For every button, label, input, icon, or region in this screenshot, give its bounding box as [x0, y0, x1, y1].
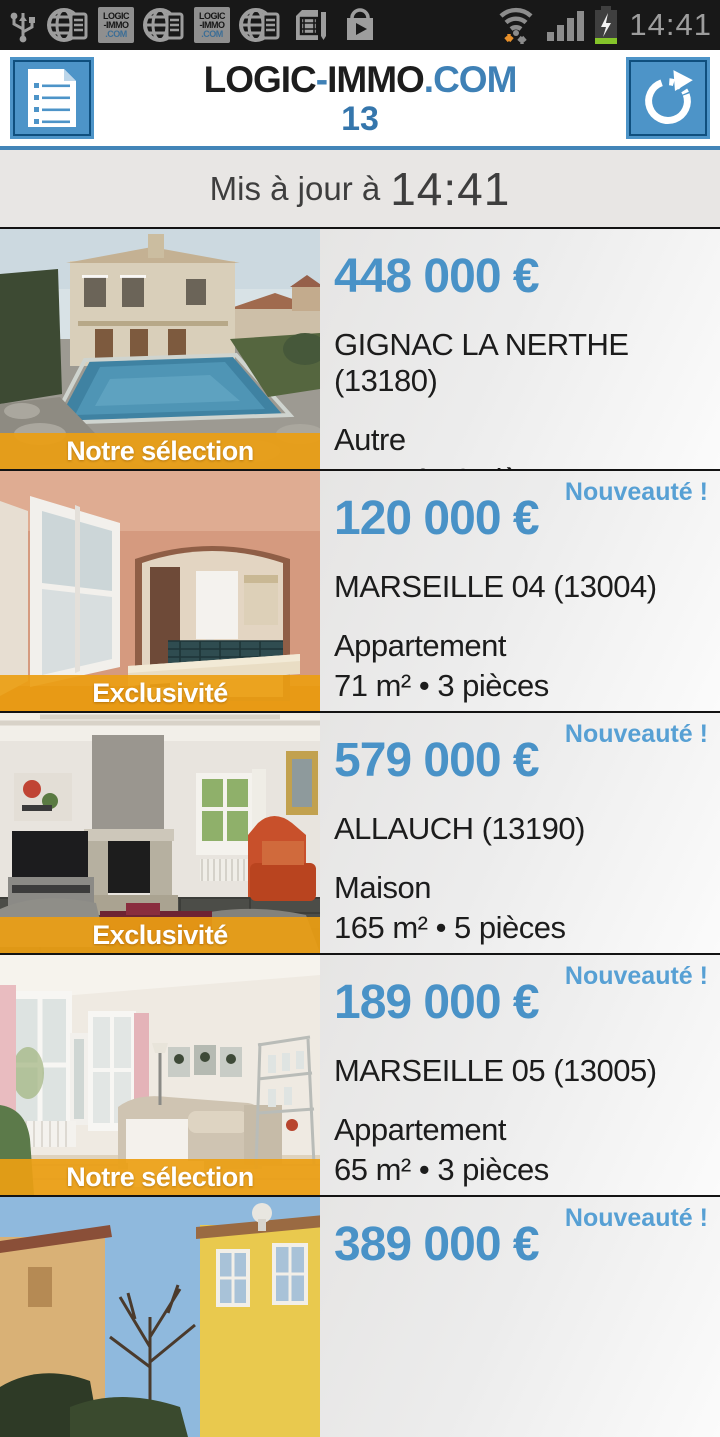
list-document-icon — [26, 67, 78, 129]
badge-exclusivite: Exclusivité — [0, 675, 320, 711]
listing-location: MARSEILLE 05 (13005) — [334, 1053, 708, 1089]
update-time: 14:41 — [390, 162, 510, 216]
app-title-main: LOGIC-IMMO.COM — [94, 61, 626, 100]
listing-details: 65 m² • 3 pièces — [334, 1152, 708, 1188]
play-store-icon — [339, 6, 379, 44]
listings-menu-button[interactable] — [10, 57, 94, 139]
property-photo-house-with-pool: Notre sélection — [0, 229, 320, 469]
listing-row[interactable]: Notre sélection Nouveauté ! 189 000 € MA… — [0, 953, 720, 1195]
listing-row[interactable]: Nouveauté ! 389 000 € — [0, 1195, 720, 1437]
logic-immo-app-icon: LOGIC -IMMO .COM — [98, 7, 134, 43]
app-screen: LOGIC -IMMO .COM LOGIC -IMMO .COM — [0, 0, 720, 1280]
badge-exclusivite: Exclusivité — [0, 917, 320, 953]
usb-icon — [8, 7, 38, 43]
listing-location: GIGNAC LA NERTHE (13180) — [334, 327, 708, 399]
listing-info: Nouveauté ! 120 000 € MARSEILLE 04 (1300… — [320, 471, 720, 711]
listing-details: 71 m² • 3 pièces — [334, 668, 708, 704]
badge-notre-selection: Notre sélection — [0, 1159, 320, 1195]
browser-notification-icon — [47, 6, 89, 44]
browser-notification-icon — [143, 6, 185, 44]
app-title: LOGIC-IMMO.COM 13 — [94, 59, 626, 138]
listing-info: Nouveauté ! 189 000 € MARSEILLE 05 (1300… — [320, 955, 720, 1195]
property-photo-bright-living-room: Notre sélection — [0, 955, 320, 1195]
listing-row[interactable]: Exclusivité Nouveauté ! 579 000 € ALLAUC… — [0, 711, 720, 953]
update-banner: Mis à jour à 14:41 — [0, 150, 720, 227]
listing-info: Nouveauté ! 579 000 € ALLAUCH (13190) Ma… — [320, 713, 720, 953]
listing-type: Appartement — [334, 628, 708, 664]
new-flag: Nouveauté ! — [565, 1204, 708, 1233]
listing-info: Nouveauté ! 389 000 € — [320, 1197, 720, 1437]
new-flag: Nouveauté ! — [565, 478, 708, 507]
browser-notification-icon — [239, 6, 281, 44]
property-photo-apartment-interior: Exclusivité — [0, 471, 320, 711]
listing-type: Autre — [334, 422, 708, 458]
listing-type: Appartement — [334, 1112, 708, 1148]
logic-immo-app-icon: LOGIC -IMMO .COM — [194, 7, 230, 43]
status-bar: LOGIC -IMMO .COM LOGIC -IMMO .COM — [0, 0, 720, 50]
department-number: 13 — [94, 102, 626, 138]
status-bar-indicators: 14:41 — [493, 4, 712, 46]
property-photo-living-room-fireplace: Exclusivité — [0, 713, 320, 953]
listing-type: Maison — [334, 870, 708, 906]
listing-row[interactable]: Exclusivité Nouveauté ! 120 000 € MARSEI… — [0, 469, 720, 711]
status-bar-notifications: LOGIC -IMMO .COM LOGIC -IMMO .COM — [8, 6, 493, 44]
battery-charging-icon — [593, 5, 619, 45]
badge-notre-selection: Notre sélection — [0, 433, 320, 469]
listing-price: 448 000 € — [334, 249, 708, 304]
signal-strength-icon — [545, 6, 587, 44]
property-photo-yellow-house — [0, 1197, 320, 1437]
app-badge-line: .COM — [105, 30, 127, 39]
wifi-traffic-icon — [493, 4, 539, 46]
refresh-button[interactable] — [626, 57, 710, 139]
listing-row[interactable]: Notre sélection 448 000 € GIGNAC LA NERT… — [0, 227, 720, 469]
new-flag: Nouveauté ! — [565, 720, 708, 749]
sim-card-icon — [290, 6, 330, 44]
listing-details: 165 m² • 5 pièces — [334, 910, 708, 946]
listing-results: Notre sélection 448 000 € GIGNAC LA NERT… — [0, 227, 720, 1437]
app-header: LOGIC-IMMO.COM 13 — [0, 50, 720, 150]
clock: 14:41 — [629, 7, 712, 43]
app-badge-line: .COM — [201, 30, 223, 39]
listing-info: 448 000 € GIGNAC LA NERTHE (13180) Autre… — [320, 229, 720, 469]
update-label: Mis à jour à — [210, 170, 381, 208]
new-flag: Nouveauté ! — [565, 962, 708, 991]
refresh-icon — [637, 67, 699, 129]
listing-location: MARSEILLE 04 (13004) — [334, 569, 708, 605]
listing-location: ALLAUCH (13190) — [334, 811, 708, 847]
